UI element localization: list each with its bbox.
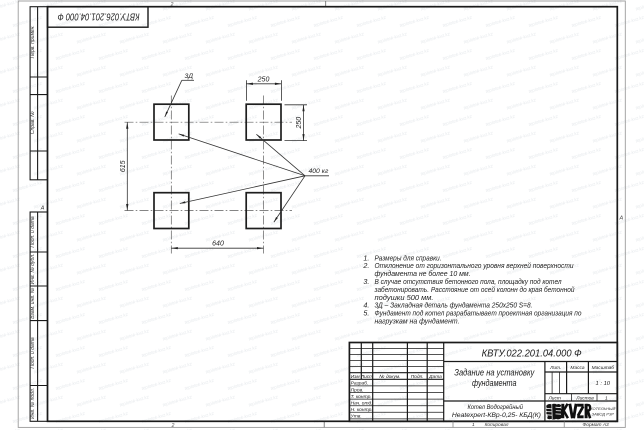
svg-text:teplotek-kvz.kz: teplotek-kvz.kz	[227, 81, 258, 94]
svg-text:teplotek-kvz.kz: teplotek-kvz.kz	[334, 196, 365, 209]
svg-text:teplotek-kvz.kz: teplotek-kvz.kz	[635, 31, 644, 44]
svg-text:teplotek-kvz.kz: teplotek-kvz.kz	[141, 312, 172, 325]
svg-text:teplotek-kvz.kz: teplotek-kvz.kz	[635, 97, 644, 110]
svg-text:teplotek-kvz.kz: teplotek-kvz.kz	[33, 196, 64, 209]
svg-text:teplotek-kvz.kz: teplotek-kvz.kz	[614, 81, 644, 94]
svg-text:teplotek-kvz.kz: teplotek-kvz.kz	[592, 262, 623, 275]
svg-text:teplotek-kvz.kz: teplotek-kvz.kz	[76, 130, 107, 143]
svg-text:teplotek-kvz.kz: teplotek-kvz.kz	[356, 147, 387, 160]
svg-text:teplotek-kvz.kz: teplotek-kvz.kz	[205, 328, 236, 341]
svg-text:Копировал: Копировал	[485, 422, 509, 428]
svg-text:Масштаб: Масштаб	[592, 365, 615, 371]
svg-text:teplotek-kvz.kz: teplotek-kvz.kz	[377, 163, 408, 176]
svg-text:teplotek-kvz.kz: teplotek-kvz.kz	[635, 394, 644, 407]
svg-text:teplotek-kvz.kz: teplotek-kvz.kz	[399, 213, 430, 226]
svg-text:teplotek-kvz.kz: teplotek-kvz.kz	[442, 48, 473, 61]
svg-text:teplotek-kvz.kz: teplotek-kvz.kz	[528, 48, 559, 61]
svg-text:teplotek-kvz.kz: teplotek-kvz.kz	[549, 97, 580, 110]
svg-text:teplotek-kvz.kz: teplotek-kvz.kz	[227, 378, 258, 391]
svg-text:teplotek-kvz.kz: teplotek-kvz.kz	[571, 114, 602, 127]
svg-text:teplotek-kvz.kz: teplotek-kvz.kz	[399, 48, 430, 61]
svg-text:teplotek-kvz.kz: teplotek-kvz.kz	[162, 295, 193, 308]
svg-text:teplotek-kvz.kz: teplotek-kvz.kz	[592, 196, 623, 209]
svg-text:teplotek-kvz.kz: teplotek-kvz.kz	[420, 130, 451, 143]
svg-text:teplotek-kvz.kz: teplotek-kvz.kz	[227, 147, 258, 160]
svg-text:teplotek-kvz.kz: teplotek-kvz.kz	[528, 81, 559, 94]
svg-text:teplotek-kvz.kz: teplotek-kvz.kz	[12, 213, 43, 226]
svg-text:teplotek-kvz.kz: teplotek-kvz.kz	[313, 180, 344, 193]
svg-text:teplotek-kvz.kz: teplotek-kvz.kz	[571, 180, 602, 193]
svg-text:teplotek-kvz.kz: teplotek-kvz.kz	[420, 196, 451, 209]
svg-text:teplotek-kvz.kz: teplotek-kvz.kz	[162, 31, 193, 44]
svg-text:teplotek-kvz.kz: teplotek-kvz.kz	[184, 81, 215, 94]
svg-text:КОТЕЛЬНЫЙ: КОТЕЛЬНЫЙ	[590, 406, 615, 411]
svg-text:teplotek-kvz.kz: teplotek-kvz.kz	[377, 64, 408, 77]
svg-text:teplotek-kvz.kz: teplotek-kvz.kz	[98, 114, 129, 127]
svg-text:teplotek-kvz.kz: teplotek-kvz.kz	[12, 180, 43, 193]
svg-text:teplotek-kvz.kz: teplotek-kvz.kz	[614, 411, 644, 424]
svg-text:teplotek-kvz.kz: teplotek-kvz.kz	[76, 64, 107, 77]
svg-text:teplotek-kvz.kz: teplotek-kvz.kz	[98, 246, 129, 259]
svg-text:teplotek-kvz.kz: teplotek-kvz.kz	[98, 180, 129, 193]
svg-text:А: А	[40, 206, 45, 212]
svg-text:teplotek-kvz.kz: teplotek-kvz.kz	[119, 31, 150, 44]
svg-text:teplotek-kvz.kz: teplotek-kvz.kz	[549, 31, 580, 44]
svg-text:teplotek-kvz.kz: teplotek-kvz.kz	[592, 0, 623, 11]
svg-text:teplotek-kvz.kz: teplotek-kvz.kz	[571, 147, 602, 160]
svg-text:1 : 10: 1 : 10	[596, 381, 611, 387]
svg-text:teplotek-kvz.kz: teplotek-kvz.kz	[614, 345, 644, 358]
svg-text:teplotek-kvz.kz: teplotek-kvz.kz	[635, 0, 644, 11]
svg-text:teplotek-kvz.kz: teplotek-kvz.kz	[205, 361, 236, 374]
svg-text:teplotek-kvz.kz: teplotek-kvz.kz	[635, 196, 644, 209]
svg-text:teplotek-kvz.kz: teplotek-kvz.kz	[12, 147, 43, 160]
svg-text:teplotek-kvz.kz: teplotek-kvz.kz	[205, 295, 236, 308]
svg-text:teplotek-kvz.kz: teplotek-kvz.kz	[614, 48, 644, 61]
svg-text:teplotek-kvz.kz: teplotek-kvz.kz	[334, 64, 365, 77]
svg-text:Подп. и дата: Подп. и дата	[30, 337, 36, 369]
svg-text:teplotek-kvz.kz: teplotek-kvz.kz	[205, 163, 236, 176]
svg-text:teplotek-kvz.kz: teplotek-kvz.kz	[506, 97, 537, 110]
svg-text:teplotek-kvz.kz: teplotek-kvz.kz	[55, 114, 86, 127]
svg-text:teplotek-kvz.kz: teplotek-kvz.kz	[356, 213, 387, 226]
svg-text:teplotek-kvz.kz: teplotek-kvz.kz	[291, 394, 322, 407]
svg-text:teplotek-kvz.kz: teplotek-kvz.kz	[614, 246, 644, 259]
svg-text:№ докум.: № докум.	[379, 374, 400, 380]
svg-text:teplotek-kvz.kz: teplotek-kvz.kz	[592, 328, 623, 341]
svg-text:teplotek-kvz.kz: teplotek-kvz.kz	[313, 114, 344, 127]
svg-text:3.: 3.	[363, 277, 369, 286]
svg-text:teplotek-kvz.kz: teplotek-kvz.kz	[141, 147, 172, 160]
svg-text:teplotek-kvz.kz: teplotek-kvz.kz	[442, 345, 473, 358]
svg-text:teplotek-kvz.kz: teplotek-kvz.kz	[205, 0, 236, 11]
svg-text:teplotek-kvz.kz: teplotek-kvz.kz	[119, 328, 150, 341]
svg-text:teplotek-kvz.kz: teplotek-kvz.kz	[55, 147, 86, 160]
svg-text:250: 250	[257, 76, 270, 83]
svg-text:нагрузкам на фундамент.: нагрузкам на фундамент.	[375, 317, 460, 326]
svg-text:teplotek-kvz.kz: teplotek-kvz.kz	[399, 15, 430, 28]
svg-text:teplotek-kvz.kz: teplotek-kvz.kz	[184, 147, 215, 160]
svg-text:teplotek-kvz.kz: teplotek-kvz.kz	[485, 15, 516, 28]
svg-text:teplotek-kvz.kz: teplotek-kvz.kz	[614, 279, 644, 292]
svg-text:teplotek-kvz.kz: teplotek-kvz.kz	[55, 81, 86, 94]
svg-text:teplotek-kvz.kz: teplotek-kvz.kz	[98, 213, 129, 226]
svg-text:teplotek-kvz.kz: teplotek-kvz.kz	[291, 0, 322, 11]
svg-text:teplotek-kvz.kz: teplotek-kvz.kz	[592, 229, 623, 242]
svg-text:teplotek-kvz.kz: teplotek-kvz.kz	[463, 229, 494, 242]
svg-text:teplotek-kvz.kz: teplotek-kvz.kz	[442, 378, 473, 391]
svg-text:Подп. и дата: Подп. и дата	[30, 216, 36, 248]
svg-text:teplotek-kvz.kz: teplotek-kvz.kz	[55, 312, 86, 325]
svg-text:teplotek-kvz.kz: teplotek-kvz.kz	[334, 328, 365, 341]
svg-text:teplotek-kvz.kz: teplotek-kvz.kz	[399, 81, 430, 94]
svg-text:teplotek-kvz.kz: teplotek-kvz.kz	[184, 279, 215, 292]
svg-text:teplotek-kvz.kz: teplotek-kvz.kz	[377, 196, 408, 209]
svg-text:Подп.: Подп.	[411, 374, 424, 380]
svg-text:teplotek-kvz.kz: teplotek-kvz.kz	[270, 279, 301, 292]
svg-text:teplotek-kvz.kz: teplotek-kvz.kz	[270, 81, 301, 94]
svg-text:teplotek-kvz.kz: teplotek-kvz.kz	[119, 361, 150, 374]
svg-text:teplotek-kvz.kz: teplotek-kvz.kz	[442, 81, 473, 94]
svg-text:teplotek-kvz.kz: teplotek-kvz.kz	[12, 345, 43, 358]
svg-text:teplotek-kvz.kz: teplotek-kvz.kz	[291, 97, 322, 110]
svg-text:teplotek-kvz.kz: teplotek-kvz.kz	[270, 246, 301, 259]
svg-text:Heatexpert-КВр-0,25- КБД(К): Heatexpert-КВр-0,25- КБД(К)	[452, 412, 541, 419]
svg-text:teplotek-kvz.kz: teplotek-kvz.kz	[119, 262, 150, 275]
svg-text:teplotek-kvz.kz: teplotek-kvz.kz	[12, 378, 43, 391]
svg-text:teplotek-kvz.kz: teplotek-kvz.kz	[549, 196, 580, 209]
svg-text:teplotek-kvz.kz: teplotek-kvz.kz	[420, 31, 451, 44]
svg-text:teplotek-kvz.kz: teplotek-kvz.kz	[571, 213, 602, 226]
svg-text:Лист: Лист	[548, 396, 561, 402]
svg-text:teplotek-kvz.kz: teplotek-kvz.kz	[291, 130, 322, 143]
svg-text:teplotek-kvz.kz: teplotek-kvz.kz	[592, 163, 623, 176]
svg-text:Инв. № дубл.: Инв. № дубл.	[30, 254, 36, 285]
svg-text:teplotek-kvz.kz: teplotek-kvz.kz	[76, 295, 107, 308]
svg-text:teplotek-kvz.kz: teplotek-kvz.kz	[184, 378, 215, 391]
svg-text:teplotek-kvz.kz: teplotek-kvz.kz	[485, 213, 516, 226]
svg-text:teplotek-kvz.kz: teplotek-kvz.kz	[635, 229, 644, 242]
svg-text:teplotek-kvz.kz: teplotek-kvz.kz	[334, 0, 365, 11]
svg-text:teplotek-kvz.kz: teplotek-kvz.kz	[614, 114, 644, 127]
svg-text:teplotek-kvz.kz: teplotek-kvz.kz	[399, 114, 430, 127]
svg-text:teplotek-kvz.kz: teplotek-kvz.kz	[227, 246, 258, 259]
svg-text:teplotek-kvz.kz: teplotek-kvz.kz	[291, 64, 322, 77]
svg-text:teplotek-kvz.kz: teplotek-kvz.kz	[76, 262, 107, 275]
svg-text:teplotek-kvz.kz: teplotek-kvz.kz	[141, 213, 172, 226]
svg-text:teplotek-kvz.kz: teplotek-kvz.kz	[141, 15, 172, 28]
svg-text:teplotek-kvz.kz: teplotek-kvz.kz	[270, 15, 301, 28]
svg-text:teplotek-kvz.kz: teplotek-kvz.kz	[270, 147, 301, 160]
svg-text:teplotek-kvz.kz: teplotek-kvz.kz	[76, 394, 107, 407]
svg-text:teplotek-kvz.kz: teplotek-kvz.kz	[614, 378, 644, 391]
svg-text:teplotek-kvz.kz: teplotek-kvz.kz	[463, 97, 494, 110]
svg-text:teplotek-kvz.kz: teplotek-kvz.kz	[463, 0, 494, 11]
svg-text:teplotek-kvz.kz: teplotek-kvz.kz	[334, 97, 365, 110]
svg-text:teplotek-kvz.kz: teplotek-kvz.kz	[463, 64, 494, 77]
svg-text:teplotek-kvz.kz: teplotek-kvz.kz	[270, 312, 301, 325]
svg-text:teplotek-kvz.kz: teplotek-kvz.kz	[377, 31, 408, 44]
svg-text:teplotek-kvz.kz: teplotek-kvz.kz	[549, 328, 580, 341]
svg-text:teplotek-kvz.kz: teplotek-kvz.kz	[528, 180, 559, 193]
svg-text:teplotek-kvz.kz: teplotek-kvz.kz	[334, 130, 365, 143]
svg-text:Разраб.: Разраб.	[351, 381, 369, 387]
svg-text:teplotek-kvz.kz: teplotek-kvz.kz	[463, 328, 494, 341]
svg-text:teplotek-kvz.kz: teplotek-kvz.kz	[635, 130, 644, 143]
svg-text:Масса: Масса	[570, 365, 585, 371]
svg-text:teplotek-kvz.kz: teplotek-kvz.kz	[141, 81, 172, 94]
svg-text:teplotek-kvz.kz: teplotek-kvz.kz	[377, 130, 408, 143]
svg-text:teplotek-kvz.kz: teplotek-kvz.kz	[270, 180, 301, 193]
svg-text:teplotek-kvz.kz: teplotek-kvz.kz	[291, 295, 322, 308]
svg-text:teplotek-kvz.kz: teplotek-kvz.kz	[549, 229, 580, 242]
svg-text:5.: 5.	[363, 309, 369, 318]
svg-text:teplotek-kvz.kz: teplotek-kvz.kz	[162, 262, 193, 275]
svg-text:teplotek-kvz.kz: teplotek-kvz.kz	[485, 246, 516, 259]
svg-text:teplotek-kvz.kz: teplotek-kvz.kz	[205, 262, 236, 275]
svg-text:Задание на установку: Задание на установку	[454, 368, 535, 379]
svg-text:teplotek-kvz.kz: teplotek-kvz.kz	[184, 48, 215, 61]
svg-text:teplotek-kvz.kz: teplotek-kvz.kz	[313, 81, 344, 94]
svg-text:teplotek-kvz.kz: teplotek-kvz.kz	[506, 163, 537, 176]
svg-text:teplotek-kvz.kz: teplotek-kvz.kz	[291, 361, 322, 374]
svg-text:teplotek-kvz.kz: teplotek-kvz.kz	[356, 48, 387, 61]
svg-text:teplotek-kvz.kz: teplotek-kvz.kz	[76, 97, 107, 110]
svg-text:teplotek-kvz.kz: teplotek-kvz.kz	[377, 328, 408, 341]
svg-text:teplotek-kvz.kz: teplotek-kvz.kz	[12, 312, 43, 325]
svg-text:teplotek-kvz.kz: teplotek-kvz.kz	[506, 328, 537, 341]
svg-text:Котел Водогрейный: Котел Водогрейный	[467, 403, 523, 411]
svg-text:teplotek-kvz.kz: teplotek-kvz.kz	[592, 130, 623, 143]
svg-text:teplotek-kvz.kz: teplotek-kvz.kz	[549, 163, 580, 176]
svg-text:teplotek-kvz.kz: teplotek-kvz.kz	[141, 345, 172, 358]
svg-text:teplotek-kvz.kz: teplotek-kvz.kz	[442, 147, 473, 160]
svg-text:teplotek-kvz.kz: teplotek-kvz.kz	[528, 378, 559, 391]
svg-text:teplotek-kvz.kz: teplotek-kvz.kz	[528, 15, 559, 28]
svg-text:teplotek-kvz.kz: teplotek-kvz.kz	[248, 328, 279, 341]
svg-text:teplotek-kvz.kz: teplotek-kvz.kz	[313, 378, 344, 391]
svg-text:teplotek-kvz.kz: teplotek-kvz.kz	[184, 180, 215, 193]
svg-text:teplotek-kvz.kz: teplotek-kvz.kz	[614, 180, 644, 193]
svg-text:teplotek-kvz.kz: teplotek-kvz.kz	[141, 48, 172, 61]
svg-text:teplotek-kvz.kz: teplotek-kvz.kz	[442, 180, 473, 193]
svg-text:teplotek-kvz.kz: teplotek-kvz.kz	[141, 246, 172, 259]
svg-text:teplotek-kvz.kz: teplotek-kvz.kz	[227, 345, 258, 358]
svg-text:teplotek-kvz.kz: teplotek-kvz.kz	[270, 213, 301, 226]
svg-text:teplotek-kvz.kz: teplotek-kvz.kz	[119, 229, 150, 242]
svg-text:teplotek-kvz.kz: teplotek-kvz.kz	[614, 213, 644, 226]
svg-text:teplotek-kvz.kz: teplotek-kvz.kz	[119, 196, 150, 209]
svg-text:Утв.: Утв.	[351, 414, 362, 420]
svg-text:teplotek-kvz.kz: teplotek-kvz.kz	[528, 114, 559, 127]
svg-text:teplotek-kvz.kz: teplotek-kvz.kz	[506, 229, 537, 242]
svg-text:teplotek-kvz.kz: teplotek-kvz.kz	[635, 262, 644, 275]
svg-text:teplotek-kvz.kz: teplotek-kvz.kz	[119, 0, 150, 11]
svg-text:teplotek-kvz.kz: teplotek-kvz.kz	[549, 130, 580, 143]
svg-text:teplotek-kvz.kz: teplotek-kvz.kz	[313, 279, 344, 292]
svg-text:teplotek-kvz.kz: teplotek-kvz.kz	[592, 64, 623, 77]
svg-text:teplotek-kvz.kz: teplotek-kvz.kz	[162, 163, 193, 176]
svg-text:teplotek-kvz.kz: teplotek-kvz.kz	[442, 213, 473, 226]
svg-text:teplotek-kvz.kz: teplotek-kvz.kz	[399, 147, 430, 160]
svg-text:250: 250	[296, 117, 303, 130]
svg-text:teplotek-kvz.kz: teplotek-kvz.kz	[528, 147, 559, 160]
svg-text:teplotek-kvz.kz: teplotek-kvz.kz	[55, 48, 86, 61]
svg-text:teplotek-kvz.kz: teplotek-kvz.kz	[592, 295, 623, 308]
svg-text:teplotek-kvz.kz: teplotek-kvz.kz	[119, 130, 150, 143]
svg-text:teplotek-kvz.kz: teplotek-kvz.kz	[184, 246, 215, 259]
svg-text:teplotek-kvz.kz: teplotek-kvz.kz	[549, 295, 580, 308]
svg-text:teplotek-kvz.kz: teplotek-kvz.kz	[442, 15, 473, 28]
svg-text:teplotek-kvz.kz: teplotek-kvz.kz	[442, 246, 473, 259]
svg-text:teplotek-kvz.kz: teplotek-kvz.kz	[571, 279, 602, 292]
svg-text:teplotek-kvz.kz: teplotek-kvz.kz	[291, 328, 322, 341]
svg-text:teplotek-kvz.kz: teplotek-kvz.kz	[614, 147, 644, 160]
svg-text:teplotek-kvz.kz: teplotek-kvz.kz	[614, 15, 644, 28]
svg-text:3Д: 3Д	[185, 73, 194, 80]
svg-text:teplotek-kvz.kz: teplotek-kvz.kz	[184, 15, 215, 28]
svg-text:teplotek-kvz.kz: teplotek-kvz.kz	[55, 279, 86, 292]
svg-text:teplotek-kvz.kz: teplotek-kvz.kz	[463, 163, 494, 176]
svg-text:teplotek-kvz.kz: teplotek-kvz.kz	[162, 361, 193, 374]
svg-text:615: 615	[120, 160, 127, 172]
svg-text:teplotek-kvz.kz: teplotek-kvz.kz	[98, 279, 129, 292]
svg-text:teplotek-kvz.kz: teplotek-kvz.kz	[248, 31, 279, 44]
svg-text:teplotek-kvz.kz: teplotek-kvz.kz	[313, 48, 344, 61]
svg-text:teplotek-kvz.kz: teplotek-kvz.kz	[528, 246, 559, 259]
svg-text:teplotek-kvz.kz: teplotek-kvz.kz	[356, 81, 387, 94]
svg-text:teplotek-kvz.kz: teplotek-kvz.kz	[119, 97, 150, 110]
svg-text:teplotek-kvz.kz: teplotek-kvz.kz	[162, 229, 193, 242]
svg-text:teplotek-kvz.kz: teplotek-kvz.kz	[485, 180, 516, 193]
svg-text:teplotek-kvz.kz: teplotek-kvz.kz	[205, 394, 236, 407]
svg-text:teplotek-kvz.kz: teplotek-kvz.kz	[571, 81, 602, 94]
svg-text:Инв. № подл.: Инв. № подл.	[30, 388, 36, 419]
svg-text:Н. контр.: Н. контр.	[351, 407, 373, 413]
svg-text:teplotek-kvz.kz: teplotek-kvz.kz	[12, 15, 43, 28]
svg-text:teplotek-kvz.kz: teplotek-kvz.kz	[399, 345, 430, 358]
svg-text:teplotek-kvz.kz: teplotek-kvz.kz	[227, 312, 258, 325]
svg-text:teplotek-kvz.kz: teplotek-kvz.kz	[162, 394, 193, 407]
svg-text:teplotek-kvz.kz: teplotek-kvz.kz	[356, 180, 387, 193]
svg-text:teplotek-kvz.kz: teplotek-kvz.kz	[463, 31, 494, 44]
svg-text:teplotek-kvz.kz: teplotek-kvz.kz	[55, 246, 86, 259]
svg-text:teplotek-kvz.kz: teplotek-kvz.kz	[205, 31, 236, 44]
svg-text:teplotek-kvz.kz: teplotek-kvz.kz	[98, 345, 129, 358]
svg-text:teplotek-kvz.kz: teplotek-kvz.kz	[76, 328, 107, 341]
svg-text:teplotek-kvz.kz: teplotek-kvz.kz	[635, 64, 644, 77]
svg-text:Нач. отд.: Нач. отд.	[351, 401, 373, 407]
svg-text:teplotek-kvz.kz: teplotek-kvz.kz	[98, 48, 129, 61]
svg-text:teplotek-kvz.kz: teplotek-kvz.kz	[270, 345, 301, 358]
svg-text:КВТУ.026.201.04.000 Ф: КВТУ.026.201.04.000 Ф	[58, 11, 140, 22]
svg-text:teplotek-kvz.kz: teplotek-kvz.kz	[377, 97, 408, 110]
svg-text:teplotek-kvz.kz: teplotek-kvz.kz	[313, 147, 344, 160]
svg-text:teplotek-kvz.kz: teplotek-kvz.kz	[399, 180, 430, 193]
svg-text:Лит.: Лит.	[549, 365, 561, 371]
svg-text:teplotek-kvz.kz: teplotek-kvz.kz	[98, 312, 129, 325]
svg-text:teplotek-kvz.kz: teplotek-kvz.kz	[119, 64, 150, 77]
svg-text:teplotek-kvz.kz: teplotek-kvz.kz	[248, 262, 279, 275]
svg-text:teplotek-kvz.kz: teplotek-kvz.kz	[614, 312, 644, 325]
svg-text:ЗАВОД РЗР: ЗАВОД РЗР	[592, 412, 615, 417]
svg-text:teplotek-kvz.kz: teplotek-kvz.kz	[76, 0, 107, 11]
svg-text:teplotek-kvz.kz: teplotek-kvz.kz	[313, 312, 344, 325]
svg-text:teplotek-kvz.kz: teplotek-kvz.kz	[227, 15, 258, 28]
svg-text:teplotek-kvz.kz: teplotek-kvz.kz	[205, 64, 236, 77]
svg-text:teplotek-kvz.kz: teplotek-kvz.kz	[205, 196, 236, 209]
svg-text:teplotek-kvz.kz: teplotek-kvz.kz	[227, 48, 258, 61]
svg-text:teplotek-kvz.kz: teplotek-kvz.kz	[592, 97, 623, 110]
svg-text:teplotek-kvz.kz: teplotek-kvz.kz	[291, 229, 322, 242]
svg-text:teplotek-kvz.kz: teplotek-kvz.kz	[291, 262, 322, 275]
svg-text:teplotek-kvz.kz: teplotek-kvz.kz	[55, 378, 86, 391]
svg-text:teplotek-kvz.kz: teplotek-kvz.kz	[420, 64, 451, 77]
svg-text:teplotek-kvz.kz: teplotek-kvz.kz	[184, 345, 215, 358]
svg-text:teplotek-kvz.kz: teplotek-kvz.kz	[571, 15, 602, 28]
svg-text:teplotek-kvz.kz: teplotek-kvz.kz	[506, 130, 537, 143]
svg-text:teplotek-kvz.kz: teplotek-kvz.kz	[227, 279, 258, 292]
svg-text:teplotek-kvz.kz: teplotek-kvz.kz	[334, 229, 365, 242]
svg-text:Взам. инв. №: Взам. инв. №	[30, 287, 36, 319]
svg-text:teplotek-kvz.kz: teplotek-kvz.kz	[506, 64, 537, 77]
svg-text:teplotek-kvz.kz: teplotek-kvz.kz	[506, 31, 537, 44]
svg-text:teplotek-kvz.kz: teplotek-kvz.kz	[12, 411, 43, 424]
svg-text:teplotek-kvz.kz: teplotek-kvz.kz	[98, 378, 129, 391]
svg-text:teplotek-kvz.kz: teplotek-kvz.kz	[248, 361, 279, 374]
svg-text:teplotek-kvz.kz: teplotek-kvz.kz	[162, 0, 193, 11]
svg-text:teplotek-kvz.kz: teplotek-kvz.kz	[291, 31, 322, 44]
svg-text:teplotek-kvz.kz: teplotek-kvz.kz	[313, 15, 344, 28]
svg-text:teplotek-kvz.kz: teplotek-kvz.kz	[227, 180, 258, 193]
svg-text:teplotek-kvz.kz: teplotek-kvz.kz	[55, 213, 86, 226]
svg-text:teplotek-kvz.kz: teplotek-kvz.kz	[485, 114, 516, 127]
svg-text:teplotek-kvz.kz: teplotek-kvz.kz	[420, 229, 451, 242]
svg-text:teplotek-kvz.kz: teplotek-kvz.kz	[248, 295, 279, 308]
svg-text:teplotek-kvz.kz: teplotek-kvz.kz	[420, 0, 451, 11]
svg-text:teplotek-kvz.kz: teplotek-kvz.kz	[184, 312, 215, 325]
svg-text:teplotek-kvz.kz: teplotek-kvz.kz	[141, 378, 172, 391]
svg-text:КВТУ.022.201.04.000 Ф: КВТУ.022.201.04.000 Ф	[482, 348, 582, 360]
svg-text:teplotek-kvz.kz: teplotek-kvz.kz	[442, 114, 473, 127]
svg-text:teplotek-kvz.kz: teplotek-kvz.kz	[162, 328, 193, 341]
svg-text:Листов: Листов	[575, 396, 594, 402]
svg-text:Перв. примен.: Перв. примен.	[30, 25, 36, 58]
svg-text:teplotek-kvz.kz: teplotek-kvz.kz	[635, 163, 644, 176]
svg-text:teplotek-kvz.kz: teplotek-kvz.kz	[420, 328, 451, 341]
svg-text:teplotek-kvz.kz: teplotek-kvz.kz	[635, 295, 644, 308]
svg-text:teplotek-kvz.kz: teplotek-kvz.kz	[571, 246, 602, 259]
svg-text:teplotek-kvz.kz: teplotek-kvz.kz	[291, 196, 322, 209]
svg-text:teplotek-kvz.kz: teplotek-kvz.kz	[506, 196, 537, 209]
svg-text:teplotek-kvz.kz: teplotek-kvz.kz	[313, 345, 344, 358]
svg-text:teplotek-kvz.kz: teplotek-kvz.kz	[12, 114, 43, 127]
svg-text:Справ. №: Справ. №	[30, 111, 36, 134]
svg-text:Т. контр.: Т. контр.	[351, 394, 372, 400]
svg-text:teplotek-kvz.kz: teplotek-kvz.kz	[270, 378, 301, 391]
svg-text:teplotek-kvz.kz: teplotek-kvz.kz	[463, 196, 494, 209]
svg-text:teplotek-kvz.kz: teplotek-kvz.kz	[528, 213, 559, 226]
svg-text:teplotek-kvz.kz: teplotek-kvz.kz	[76, 31, 107, 44]
svg-text:teplotek-kvz.kz: teplotek-kvz.kz	[420, 97, 451, 110]
svg-text:Пров.: Пров.	[351, 387, 364, 393]
svg-text:1: 1	[472, 422, 475, 428]
svg-text:teplotek-kvz.kz: teplotek-kvz.kz	[635, 361, 644, 374]
svg-text:teplotek-kvz.kz: teplotek-kvz.kz	[549, 64, 580, 77]
svg-text:teplotek-kvz.kz: teplotek-kvz.kz	[592, 31, 623, 44]
svg-text:фундамента: фундамента	[472, 378, 517, 389]
svg-text:2.: 2.	[362, 261, 369, 270]
